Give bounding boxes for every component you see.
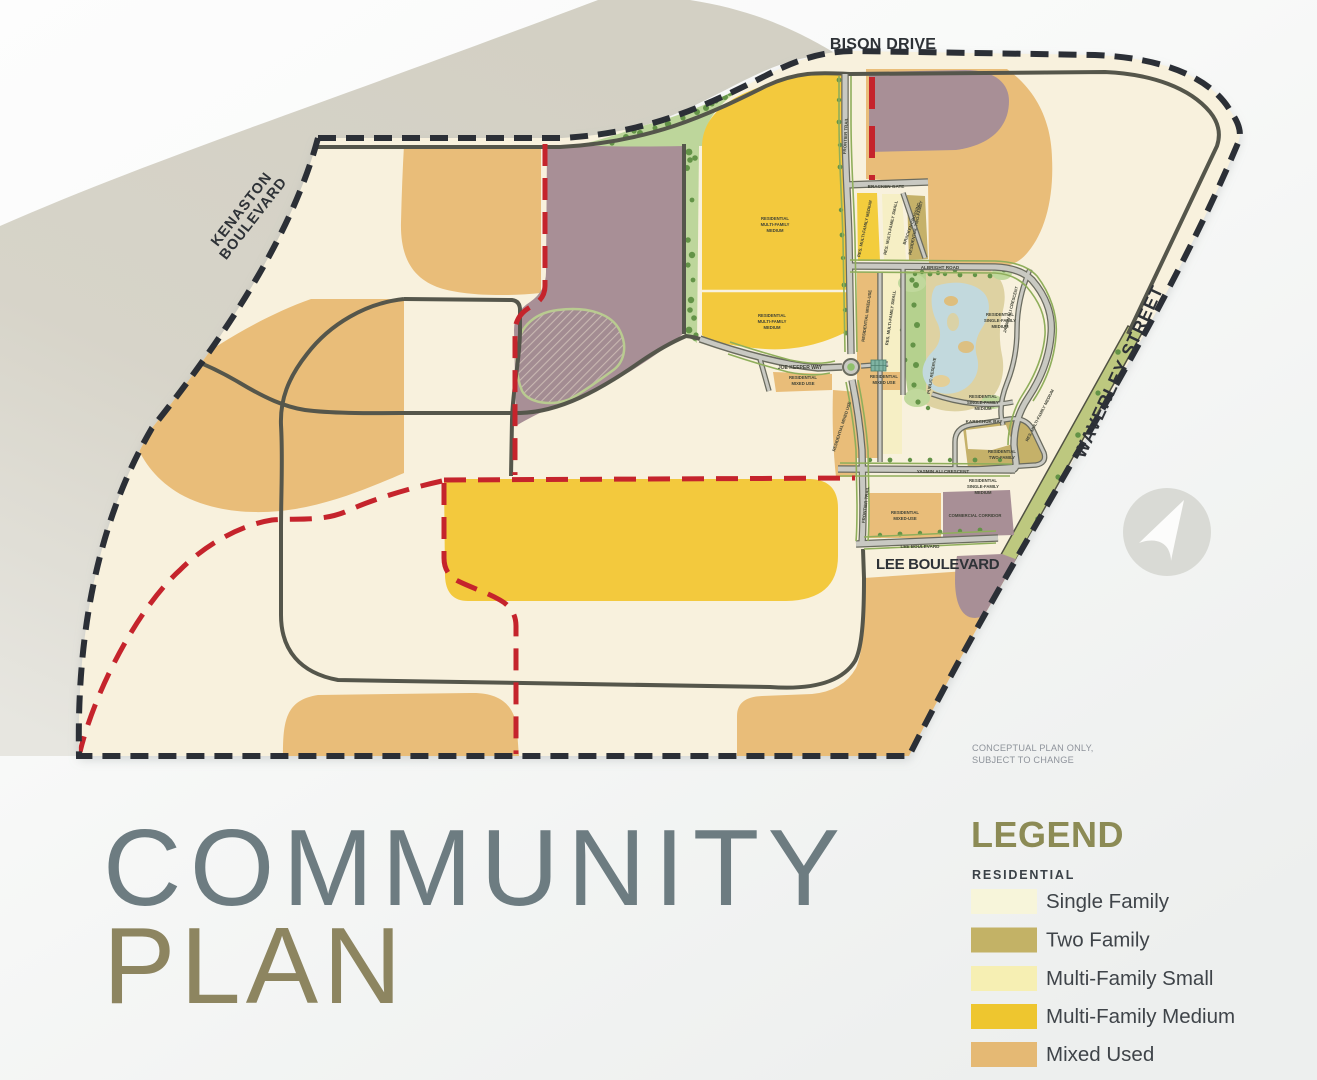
svg-text:RESIDENTIAL: RESIDENTIAL (988, 449, 1016, 454)
svg-text:RESIDENTIAL: RESIDENTIAL (758, 313, 786, 318)
svg-text:RESIDENTIAL: RESIDENTIAL (870, 374, 898, 379)
svg-text:MEDIUM: MEDIUM (975, 490, 992, 495)
svg-text:LEE BOULEVARD: LEE BOULEVARD (876, 556, 1000, 573)
svg-text:RESIDENTIAL: RESIDENTIAL (761, 216, 789, 221)
svg-text:YASMIN ALI CRESCENT: YASMIN ALI CRESCENT (917, 469, 970, 474)
svg-text:MIXED USE: MIXED USE (791, 381, 814, 386)
svg-text:LEE BOULEVARD: LEE BOULEVARD (901, 544, 941, 549)
svg-text:TWO-FAMILY: TWO-FAMILY (989, 455, 1015, 460)
svg-text:JOE KEEPER WAY: JOE KEEPER WAY (778, 365, 823, 371)
svg-text:MEDIUM: MEDIUM (767, 228, 784, 233)
svg-text:SUBJECT TO CHANGE: SUBJECT TO CHANGE (972, 755, 1074, 765)
svg-text:SINGLE-FAMILY: SINGLE-FAMILY (967, 400, 999, 405)
svg-text:MIXED-USE: MIXED-USE (893, 516, 916, 521)
svg-text:RESIDENTIAL: RESIDENTIAL (891, 510, 919, 515)
svg-text:BISON DRIVE: BISON DRIVE (830, 36, 936, 53)
svg-text:RESIDENTIAL: RESIDENTIAL (972, 868, 1075, 882)
svg-text:MIXED USE: MIXED USE (872, 380, 895, 385)
svg-text:RESIDENTIAL: RESIDENTIAL (789, 375, 817, 380)
svg-text:PLAN: PLAN (103, 905, 406, 1026)
svg-text:Multi-Family Medium: Multi-Family Medium (1046, 1005, 1235, 1028)
svg-text:Multi-Family Small: Multi-Family Small (1046, 967, 1213, 990)
svg-text:RESIDENTIAL: RESIDENTIAL (969, 394, 997, 399)
svg-text:BRACKEN GATE: BRACKEN GATE (868, 184, 905, 189)
svg-text:Single Family: Single Family (1046, 890, 1170, 913)
svg-text:SINGLE-FAMILY: SINGLE-FAMILY (967, 484, 999, 489)
svg-text:MULTI-FAMILY: MULTI-FAMILY (758, 319, 787, 324)
svg-text:SINGLE-FAMILY: SINGLE-FAMILY (984, 318, 1016, 323)
svg-text:Mixed Used: Mixed Used (1046, 1043, 1154, 1066)
svg-text:RESIDENTIAL: RESIDENTIAL (969, 478, 997, 483)
svg-text:KARSCHUK BAY: KARSCHUK BAY (966, 419, 1003, 424)
svg-text:COMMERCIAL CORRIDOR: COMMERCIAL CORRIDOR (949, 513, 1002, 518)
svg-text:MEDIUM: MEDIUM (975, 406, 992, 411)
svg-text:LEGEND: LEGEND (971, 814, 1124, 855)
svg-text:CONCEPTUAL PLAN ONLY,: CONCEPTUAL PLAN ONLY, (972, 743, 1093, 753)
svg-text:Two Family: Two Family (1046, 929, 1150, 952)
svg-text:MEDIUM: MEDIUM (764, 325, 781, 330)
svg-text:MULTI-FAMILY: MULTI-FAMILY (761, 222, 790, 227)
svg-text:ALBRIGHT ROAD: ALBRIGHT ROAD (921, 265, 960, 270)
